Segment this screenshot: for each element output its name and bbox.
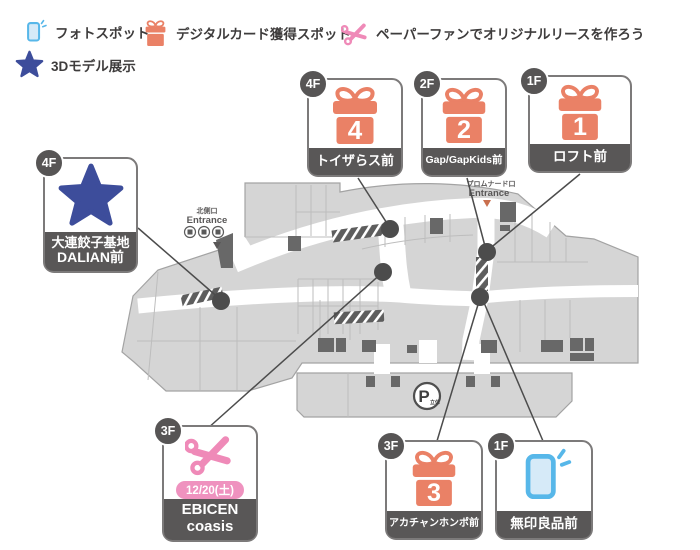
floor-badge: 1F: [519, 66, 549, 96]
callout-loft[interactable]: 1F 1 ロフト前: [528, 75, 632, 173]
callout-label-line2: DALIAN前: [46, 250, 135, 266]
scissors-icon: [341, 19, 369, 47]
map-marker-dalian[interactable]: [212, 292, 230, 310]
floor-badge: 4F: [298, 69, 328, 99]
mall-event-map-page: 北側口 Entrance プロムナード口 Entrance P 立体: [0, 0, 700, 550]
callout-label-line1: 大連餃子基地: [46, 236, 135, 251]
star-icon: [15, 50, 44, 79]
map-marker-ebicen[interactable]: [374, 263, 392, 281]
callout-toysrus[interactable]: 4F 4 トイザらス前: [307, 78, 403, 177]
promenade-entrance-name: プロムナード口: [467, 179, 516, 188]
parking-note-label: 立体: [430, 399, 441, 406]
legend-label: デジタルカード獲得スポット: [176, 23, 351, 43]
callout-label-text: 無印良品前: [498, 516, 590, 531]
floor-badge: 4F: [34, 148, 64, 178]
north-entrance-name: 北側口: [197, 206, 218, 215]
transit-icons: [185, 227, 224, 238]
callout-label: 大連餃子基地 DALIAN前: [45, 232, 136, 271]
callout-label: 無印良品前: [497, 511, 591, 538]
north-entrance-en: Entrance: [187, 215, 228, 226]
callout-ebicen[interactable]: 3F 12/20(土) EBICEN coasis: [162, 425, 258, 542]
promenade-entrance-en: Entrance: [469, 188, 510, 199]
callout-akachanhonpo[interactable]: 3F 3 アカチャンホンポ前: [385, 440, 483, 540]
floor-badge: 3F: [153, 416, 183, 446]
map-marker-toysrus[interactable]: [381, 220, 399, 238]
callout-label: アカチャンホンポ前: [387, 511, 481, 538]
callout-dalian[interactable]: 4F 大連餃子基地 DALIAN前: [43, 157, 138, 273]
legend-item-3d-model: 3Dモデル展示: [15, 50, 136, 79]
gift-number: 3: [427, 479, 441, 507]
parking-icon: P 立体: [414, 383, 441, 409]
callout-label-line1: EBICEN: [165, 502, 255, 519]
gift-number: 4: [348, 115, 363, 145]
callout-label-text: アカチャンホンポ前: [388, 518, 480, 529]
legend-label: 3Dモデル展示: [51, 55, 136, 75]
map-marker-gap-loft[interactable]: [478, 243, 496, 261]
callout-label-line2: coasis: [165, 519, 255, 536]
callout-label-text: トイザらス前: [310, 154, 400, 169]
callout-label: トイザらス前: [309, 148, 401, 175]
parking-p-label: P: [418, 387, 429, 406]
phone-icon: [22, 16, 48, 48]
callout-muji[interactable]: 1F 無印良品前: [495, 440, 593, 540]
gift-number: 1: [573, 113, 587, 141]
callout-label-text: Gap/GapKids前: [424, 155, 504, 167]
callout-gap-gapkids[interactable]: 2F 2 Gap/GapKids前: [421, 78, 507, 177]
gift-number: 2: [457, 116, 471, 144]
floor-badge: 3F: [376, 431, 406, 461]
legend-item-photo-spot: フォトスポット: [22, 16, 150, 48]
legend-label: ペーパーファンでオリジナルリースを作ろう: [376, 23, 644, 43]
gift-icon: [142, 18, 169, 47]
callout-label-text: ロフト前: [531, 149, 629, 164]
event-date-badge: 12/20(土): [176, 481, 244, 499]
legend-item-digital-card: デジタルカード獲得スポット: [142, 18, 351, 47]
floor-badge: 1F: [486, 431, 516, 461]
legend-label: フォトスポット: [55, 22, 150, 42]
floor-badge: 2F: [412, 69, 442, 99]
callout-label: Gap/GapKids前: [423, 148, 505, 175]
callout-label: ロフト前: [530, 144, 630, 171]
legend-item-paper-fan: ペーパーファンでオリジナルリースを作ろう: [341, 19, 644, 47]
callout-label: EBICEN coasis: [164, 499, 256, 540]
map-marker-akachan-muji[interactable]: [471, 288, 489, 306]
